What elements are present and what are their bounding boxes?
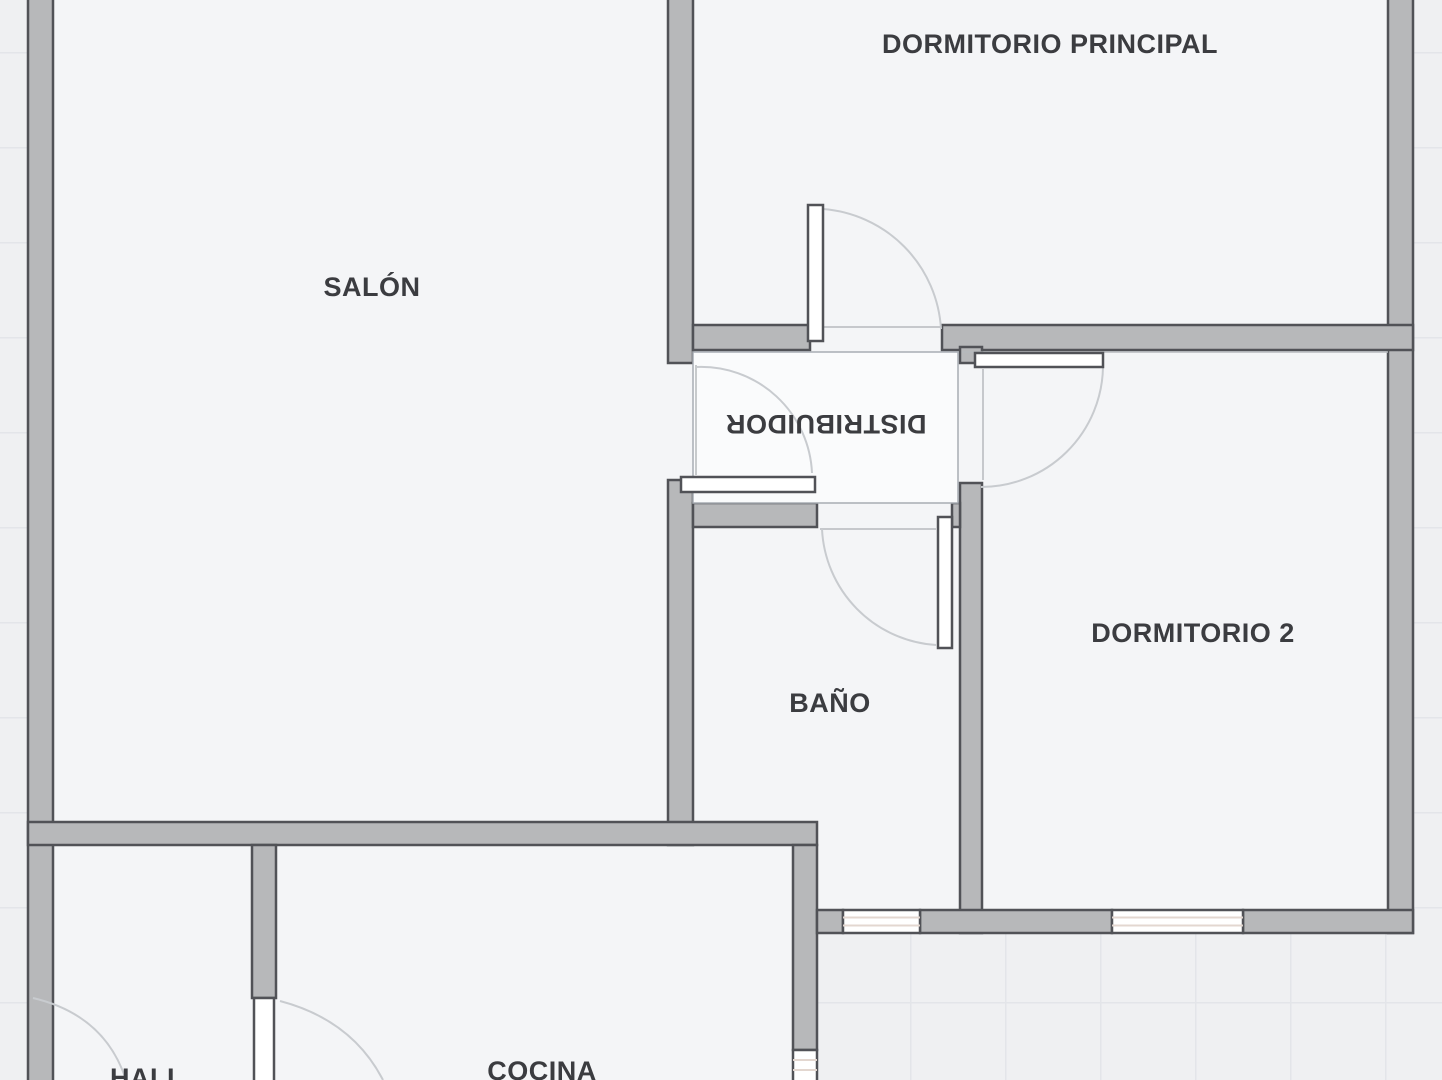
bathroom-window	[843, 910, 920, 933]
wall	[817, 910, 843, 933]
wall	[693, 503, 817, 527]
wall	[793, 845, 817, 1050]
floorplan-canvas: SALÓN DORMITORIO PRINCIPAL DISTRIBUIDOR …	[0, 0, 1442, 1080]
door-leaf	[681, 477, 815, 492]
room-label-bano: BAÑO	[789, 687, 871, 718]
door-leaf	[938, 517, 952, 648]
wall	[1388, 0, 1413, 933]
room-label-dormitorio-2: DORMITORIO 2	[1091, 618, 1295, 648]
wall	[1243, 910, 1413, 933]
door-leaf	[808, 205, 823, 341]
wall	[920, 910, 1112, 933]
wall	[252, 845, 276, 998]
room-label-salon: SALÓN	[324, 271, 421, 302]
door-leaf	[254, 998, 274, 1080]
wall	[668, 0, 693, 363]
floorplan: SALÓN DORMITORIO PRINCIPAL DISTRIBUIDOR …	[0, 0, 1442, 1080]
wall	[668, 480, 693, 845]
door-leaf	[975, 353, 1103, 367]
wall	[942, 325, 1413, 350]
wall	[28, 0, 53, 1080]
wall	[960, 483, 982, 933]
wall	[28, 822, 817, 845]
room-label-dormitorio-principal: DORMITORIO PRINCIPAL	[882, 29, 1218, 59]
wall	[693, 325, 810, 350]
room-label-distribuidor: DISTRIBUIDOR	[726, 409, 927, 439]
room-label-hall: HALL	[110, 1063, 184, 1080]
kitchen-window	[793, 1050, 817, 1080]
room-label-cocina: COCINA	[487, 1056, 597, 1080]
bedroom2-window	[1112, 910, 1243, 933]
